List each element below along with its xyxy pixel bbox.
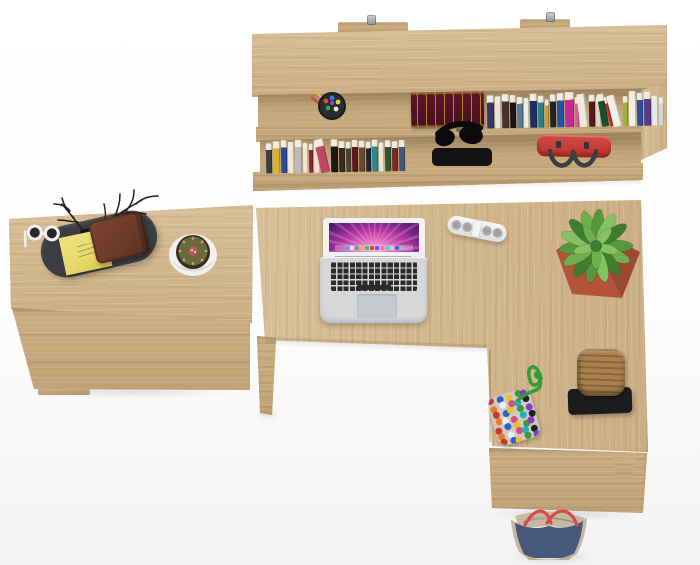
book-spine bbox=[379, 142, 385, 171]
book-spine bbox=[366, 142, 372, 172]
book-spine bbox=[385, 140, 392, 171]
pen-cup bbox=[310, 86, 350, 124]
strip-socket-icon bbox=[492, 227, 504, 239]
book-row-lower bbox=[266, 136, 433, 174]
pompom-dot bbox=[486, 397, 495, 406]
book-spine bbox=[295, 140, 303, 173]
shelf-mount-bracket-right-icon bbox=[546, 12, 555, 22]
dock-app-icon bbox=[370, 246, 374, 250]
book-spine bbox=[550, 94, 557, 127]
book-row-upper bbox=[487, 90, 660, 129]
book-spine bbox=[331, 139, 339, 172]
dock-app-icon bbox=[390, 246, 394, 250]
dock-app-icon bbox=[350, 246, 354, 250]
book-spine bbox=[530, 94, 538, 128]
book-spine bbox=[266, 143, 273, 173]
book-spine bbox=[652, 96, 659, 126]
strip-socket-icon bbox=[481, 225, 493, 237]
strip-socket-icon bbox=[450, 219, 462, 231]
book-spine bbox=[303, 143, 309, 173]
book-spine bbox=[399, 140, 406, 171]
book-spine bbox=[565, 92, 575, 127]
dock-app-icon bbox=[355, 246, 359, 250]
floor-tote-bag bbox=[503, 504, 595, 564]
strip-clip-icon bbox=[472, 220, 482, 237]
desk-return-seam bbox=[489, 350, 491, 442]
book-spine bbox=[359, 141, 366, 172]
book-spine bbox=[392, 141, 399, 171]
dock-app-icon bbox=[385, 246, 389, 250]
dock-app-icon bbox=[360, 246, 364, 250]
book-spine bbox=[339, 141, 346, 172]
potted-succulent bbox=[542, 194, 646, 302]
book-spine bbox=[524, 98, 530, 128]
desk-leg-floor-shadow bbox=[254, 410, 280, 418]
pompom-dot bbox=[503, 422, 512, 431]
dock-app-icon bbox=[375, 246, 379, 250]
sunglasses bbox=[20, 210, 66, 254]
book-spine bbox=[281, 140, 288, 173]
desk-scene bbox=[0, 0, 700, 565]
cabinet-floor-shadow bbox=[26, 387, 236, 397]
green-cord bbox=[505, 352, 565, 412]
laptop-spacebar bbox=[357, 285, 391, 290]
strip-socket-icon bbox=[461, 221, 473, 233]
book-spine bbox=[629, 91, 637, 126]
cactus-pot bbox=[166, 221, 220, 279]
wicker-basket bbox=[577, 349, 625, 396]
book-spine bbox=[623, 96, 629, 126]
book-spine bbox=[309, 144, 314, 173]
book-spine bbox=[644, 92, 652, 126]
dock-app-icon bbox=[345, 246, 349, 250]
book-spine bbox=[502, 94, 510, 128]
book-spine bbox=[589, 95, 596, 127]
book-spine bbox=[557, 93, 565, 127]
dock-app-icon bbox=[400, 246, 404, 250]
book-spine bbox=[288, 142, 295, 173]
book-spine bbox=[346, 142, 352, 172]
book-spine bbox=[545, 99, 549, 127]
book-spine bbox=[637, 93, 644, 126]
book-spine bbox=[538, 96, 545, 128]
headphones bbox=[428, 118, 498, 170]
book-spine bbox=[659, 97, 664, 125]
dock-app-icon bbox=[365, 246, 369, 250]
book-spine bbox=[273, 141, 281, 173]
shelf-mount-bracket-left-icon bbox=[367, 15, 376, 25]
handbag-handles bbox=[540, 145, 610, 175]
book-spine bbox=[372, 139, 379, 171]
dock-app-icon bbox=[395, 246, 399, 250]
book-spine bbox=[510, 95, 517, 128]
laptop-dock bbox=[335, 245, 413, 251]
laptop-trackpad bbox=[357, 294, 397, 318]
book-spine bbox=[517, 97, 524, 128]
pencil-icon bbox=[313, 89, 322, 98]
book-spine bbox=[352, 140, 359, 172]
dock-app-icon bbox=[380, 246, 384, 250]
macbook-laptop bbox=[318, 216, 428, 324]
pompom-dot bbox=[527, 415, 536, 424]
